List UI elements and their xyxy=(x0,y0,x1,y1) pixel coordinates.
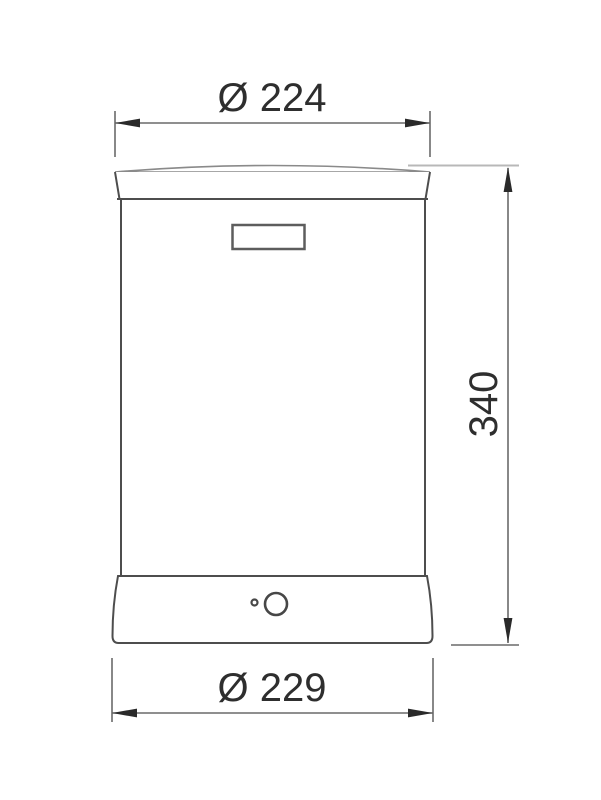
technical-drawing: Ø 224 340 Ø 229 xyxy=(0,0,601,800)
dimension-label-top-diameter: Ø 224 xyxy=(218,76,327,120)
lid-rim-arc xyxy=(115,166,430,173)
arrowhead-right xyxy=(405,119,430,128)
label-plate xyxy=(233,225,305,249)
arrowhead-left xyxy=(115,119,140,128)
arrowhead-bottom xyxy=(504,618,513,643)
bin-outline xyxy=(113,166,433,644)
dimension-bottom-diameter: Ø 229 xyxy=(112,658,433,722)
dimension-label-bottom-diameter: Ø 229 xyxy=(218,666,327,710)
arrowhead-right xyxy=(408,709,433,718)
arrowhead-left xyxy=(112,709,137,718)
lid-band xyxy=(115,172,430,199)
base-pin xyxy=(252,600,258,606)
base-button xyxy=(265,593,287,615)
drawing-canvas: Ø 224 340 Ø 229 xyxy=(0,0,601,800)
dimension-label-height: 340 xyxy=(462,371,506,438)
dimension-top-diameter: Ø 224 xyxy=(115,76,430,157)
arrowhead-top xyxy=(504,167,513,192)
